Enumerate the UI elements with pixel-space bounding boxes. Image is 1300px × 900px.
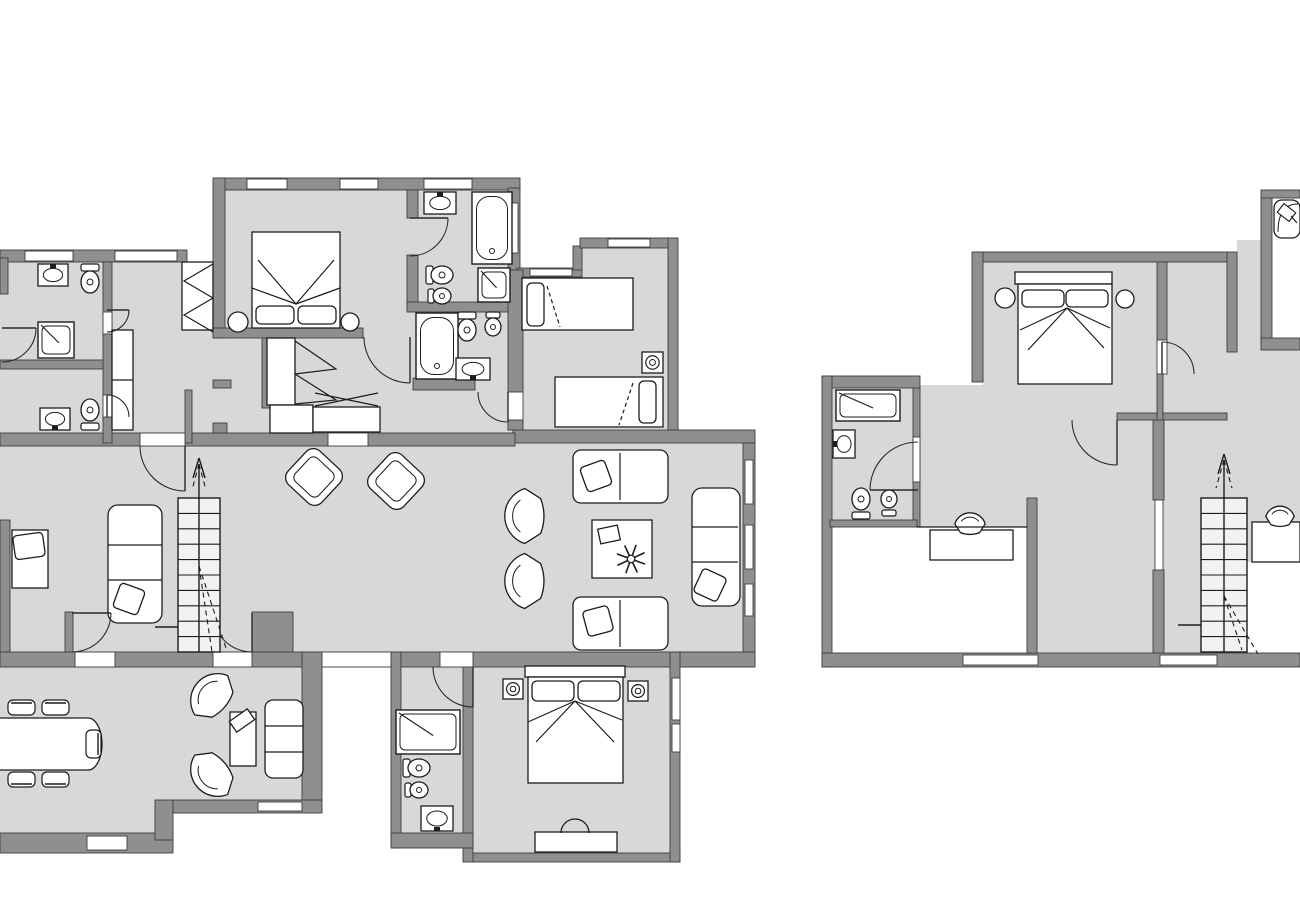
headboard <box>525 666 625 677</box>
wall <box>1261 196 1272 344</box>
window <box>745 525 753 569</box>
wall <box>0 360 103 369</box>
window <box>1155 500 1163 570</box>
wall <box>407 255 418 305</box>
pillow <box>527 283 544 326</box>
bidet <box>433 288 451 304</box>
wall <box>973 252 1227 262</box>
pillow <box>1022 290 1064 307</box>
wall <box>830 520 917 527</box>
floor-plan-page <box>0 0 1300 900</box>
window <box>87 836 127 850</box>
wall <box>213 380 231 388</box>
window <box>75 652 115 667</box>
wall <box>213 423 227 433</box>
wall <box>1153 420 1164 500</box>
washbasin-tap <box>470 376 476 380</box>
nightstand <box>228 312 248 332</box>
wall <box>1261 338 1300 350</box>
window <box>424 179 472 189</box>
wall <box>972 252 983 382</box>
wall <box>1157 262 1167 342</box>
window <box>247 179 287 189</box>
bidet <box>485 318 501 336</box>
wall <box>473 853 680 862</box>
wardrobe <box>182 262 213 330</box>
wall <box>573 246 582 270</box>
window <box>440 652 473 667</box>
pillow <box>298 306 336 324</box>
wall <box>508 420 523 430</box>
bidet-back <box>486 312 500 318</box>
wall <box>185 390 192 443</box>
window <box>103 312 112 334</box>
wall <box>65 612 73 652</box>
wall <box>668 238 678 430</box>
plant-pot <box>627 555 635 563</box>
toilet-tank <box>81 423 99 430</box>
desk <box>1252 522 1300 562</box>
wall <box>407 302 520 312</box>
wall <box>213 178 225 338</box>
wall <box>680 652 755 667</box>
window <box>672 724 680 752</box>
wall <box>252 612 293 652</box>
dining-chair <box>8 700 35 715</box>
wall <box>1227 252 1237 352</box>
pillow <box>639 381 656 423</box>
wall <box>1027 498 1037 653</box>
window <box>745 460 753 504</box>
wall <box>407 190 418 218</box>
pillow <box>1066 290 1108 307</box>
room-white <box>1247 562 1300 653</box>
wall <box>822 653 1300 667</box>
headboard <box>1015 272 1112 284</box>
washbasin-tap <box>50 264 56 268</box>
sideboard <box>313 407 380 432</box>
dining-chair <box>8 772 35 787</box>
wardrobe <box>267 338 295 405</box>
wall <box>1153 570 1164 653</box>
window <box>213 652 252 667</box>
window <box>322 652 391 667</box>
toilet-tank <box>458 312 476 319</box>
dining-chair <box>42 700 69 715</box>
window <box>608 239 650 247</box>
wall <box>0 833 173 853</box>
washbasin-tap <box>437 192 443 196</box>
window <box>913 437 920 482</box>
window <box>340 179 378 189</box>
bidet <box>410 782 428 798</box>
bathtub <box>416 313 458 379</box>
window <box>140 433 185 446</box>
wall <box>1157 372 1163 420</box>
window <box>258 802 302 811</box>
toilet <box>852 488 870 510</box>
toilet <box>408 759 430 777</box>
nightstand <box>1116 290 1134 308</box>
toilet <box>431 266 453 284</box>
nightstand <box>341 313 359 331</box>
washbasin-tap <box>434 827 440 831</box>
floor-plan-canvas <box>0 0 1300 900</box>
wall <box>155 800 173 840</box>
window <box>963 655 1038 665</box>
nightstand <box>995 288 1015 308</box>
washbasin-tap <box>833 441 837 447</box>
wall <box>1261 190 1300 198</box>
desk-chair <box>955 513 985 535</box>
wall <box>0 520 10 652</box>
window <box>672 678 680 720</box>
window <box>1160 655 1217 665</box>
pillow <box>532 681 574 701</box>
wall <box>463 652 473 862</box>
bidet-back <box>882 510 896 516</box>
pillow <box>578 681 620 701</box>
desk-chair <box>1266 506 1295 526</box>
washbasin-tap <box>52 426 58 430</box>
toilet <box>81 399 99 421</box>
dining-chair <box>42 772 69 787</box>
window <box>745 584 753 616</box>
toilet <box>458 319 476 341</box>
wall <box>391 833 473 848</box>
dining-chair <box>86 730 101 758</box>
window <box>328 433 368 446</box>
side-table <box>642 352 663 373</box>
wall <box>513 430 755 443</box>
book <box>598 525 621 544</box>
pillow <box>12 532 45 560</box>
sofa <box>265 700 303 778</box>
floor <box>913 385 983 527</box>
sideboard <box>270 405 313 433</box>
toilet-tank <box>852 512 870 519</box>
dresser <box>535 832 617 852</box>
wall <box>0 433 515 446</box>
window <box>115 251 177 261</box>
window <box>530 269 572 276</box>
floor <box>1237 240 1263 352</box>
bidet <box>881 490 897 508</box>
toilet <box>81 271 99 293</box>
window <box>508 392 523 420</box>
pillow <box>256 306 294 324</box>
window <box>25 251 73 261</box>
wall <box>302 652 322 800</box>
wall <box>822 376 920 388</box>
toilet-tank <box>81 264 99 271</box>
wall <box>0 258 8 294</box>
wall <box>1117 413 1227 420</box>
